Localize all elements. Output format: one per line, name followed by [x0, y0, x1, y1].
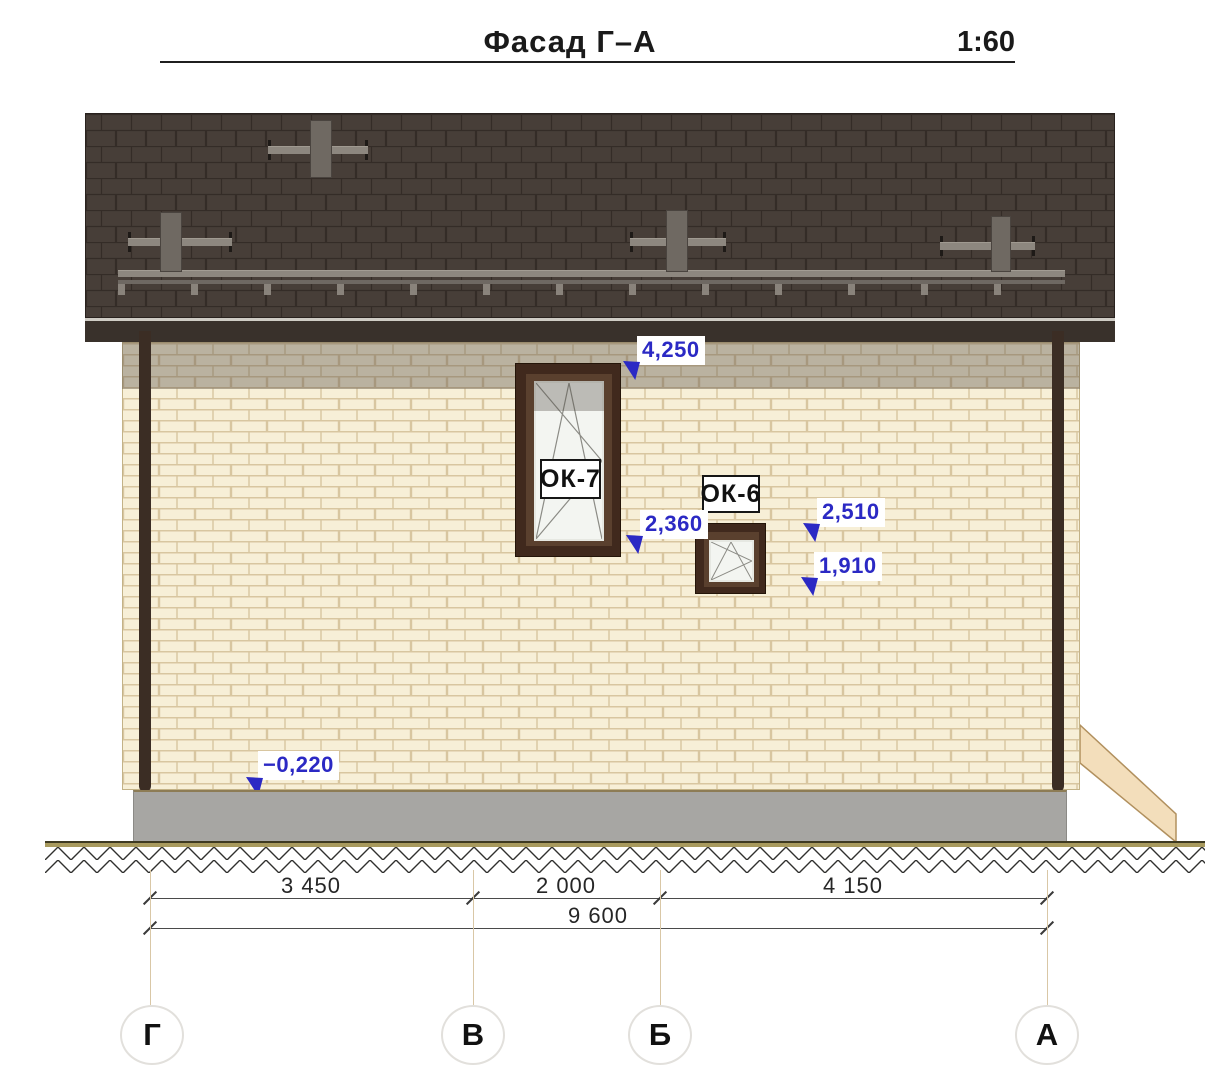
snow-guard-bar — [118, 270, 1065, 277]
axis-extension-line — [1047, 870, 1048, 1005]
vent-pipe-icon — [160, 212, 182, 272]
window-ok7-label-text: ОК-7 — [540, 465, 601, 494]
title-underline — [160, 61, 1015, 63]
downpipe-left — [139, 331, 151, 792]
axis-bubble-b: Б — [628, 1005, 692, 1065]
elevation-value-eave: 4,250 — [637, 336, 705, 365]
vent-pipe-icon — [991, 216, 1011, 272]
elevation-value-ok6-sill: 1,910 — [814, 552, 882, 581]
vent-pipe-icon — [310, 120, 332, 178]
downpipe-right — [1052, 331, 1064, 792]
glass-shadow — [534, 381, 604, 411]
snow-guard-brackets — [118, 284, 1065, 295]
axis-extension-line — [660, 870, 661, 1005]
snow-guard-rail — [118, 268, 1065, 298]
roof-vent-group — [630, 208, 726, 274]
axis-label: А — [1036, 1017, 1058, 1053]
elevation-value-ok6-head: 2,510 — [817, 498, 885, 527]
dimension-label-b-a: 4 150 — [783, 873, 923, 899]
facade-drawing-sheet: Фасад Г–А 1:60 — [0, 0, 1215, 1080]
axis-label: В — [462, 1017, 484, 1053]
roof-vent-group — [940, 214, 1035, 274]
porch-stair-stringer — [1080, 718, 1182, 845]
window-ok6-label: ОК-6 — [702, 475, 760, 513]
fascia-gutter — [85, 318, 1115, 342]
elevation-value-ok7-sill: 2,360 — [640, 510, 708, 539]
window-ok7-label: ОК-7 — [540, 459, 601, 499]
axis-label: Г — [143, 1017, 161, 1053]
window-ok6-label-text: ОК-6 — [701, 480, 762, 509]
axis-bubble-v: В — [441, 1005, 505, 1065]
axis-bubble-a: А — [1015, 1005, 1079, 1065]
roof-vent-group — [128, 210, 232, 274]
axis-label: Б — [649, 1017, 671, 1053]
elevation-value-plinth: −0,220 — [258, 751, 339, 780]
foundation-plinth — [133, 790, 1067, 843]
window-opening-icon — [711, 542, 752, 580]
vent-pipe-icon — [666, 210, 688, 272]
axis-bubble-g: Г — [120, 1005, 184, 1065]
roof-vent-group — [268, 120, 368, 182]
vent-snow-rail — [940, 242, 1035, 250]
axis-extension-line — [150, 870, 151, 1005]
window-ok6-glass — [709, 540, 754, 582]
dimension-label-total: 9 600 — [528, 903, 668, 929]
drawing-scale: 1:60 — [930, 26, 1015, 59]
dimension-label-v-b: 2 000 — [496, 873, 636, 899]
ground-hatch — [45, 847, 1205, 873]
dimension-label-g-v: 3 450 — [241, 873, 381, 899]
axis-extension-line — [473, 870, 474, 1005]
drawing-title: Фасад Г–А — [430, 24, 710, 60]
